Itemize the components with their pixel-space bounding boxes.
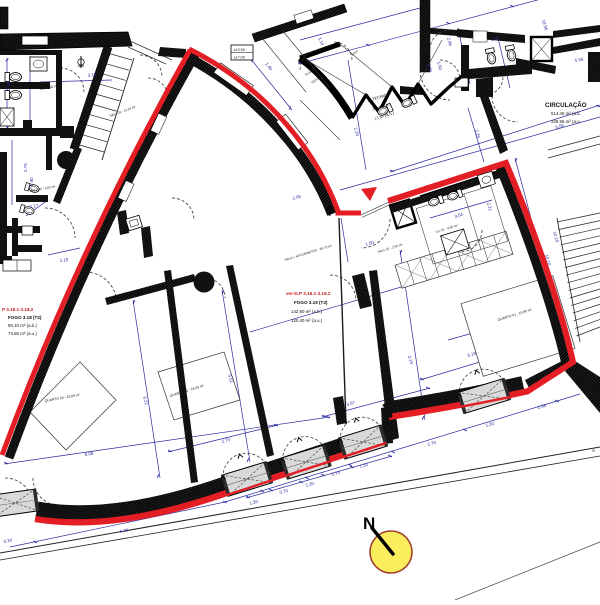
svg-text:±17.00: ±17.00 [234, 55, 245, 59]
svg-text:0.90: 0.90 [29, 177, 34, 186]
svg-text:142.90 m² (a.b.): 142.90 m² (a.b.) [291, 309, 323, 314]
svg-text:±13.50: ±13.50 [234, 48, 245, 52]
svg-text:A: A [592, 448, 595, 453]
svg-text:2.79: 2.79 [23, 163, 28, 172]
svg-text:N: N [363, 514, 375, 533]
svg-text:FOGO 3.19 (T3): FOGO 3.19 (T3) [294, 300, 328, 305]
svg-text:90.10 m² (a.b.): 90.10 m² (a.b.) [8, 323, 37, 328]
svg-text:329.95 m² (a.u.: 329.95 m² (a.u. [551, 119, 581, 124]
svg-text:ver-D.P 3.19.1-3.19.2: ver-D.P 3.19.1-3.19.2 [286, 291, 331, 296]
svg-text:120.40 m² (a.u.): 120.40 m² (a.u.) [291, 318, 323, 323]
svg-text:P 3.18.1-3.18.2: P 3.18.1-3.18.2 [2, 307, 34, 312]
svg-text:2.28: 2.28 [6, 81, 11, 90]
svg-text:514.45 m² (a.b.: 514.45 m² (a.b. [551, 111, 581, 116]
svg-text:73.65 m² (a.u.): 73.65 m² (a.u.) [8, 331, 37, 336]
svg-text:FOGO 3.18 (T2): FOGO 3.18 (T2) [8, 315, 42, 320]
svg-text:CIRCULAÇÃO: CIRCULAÇÃO [545, 102, 587, 109]
